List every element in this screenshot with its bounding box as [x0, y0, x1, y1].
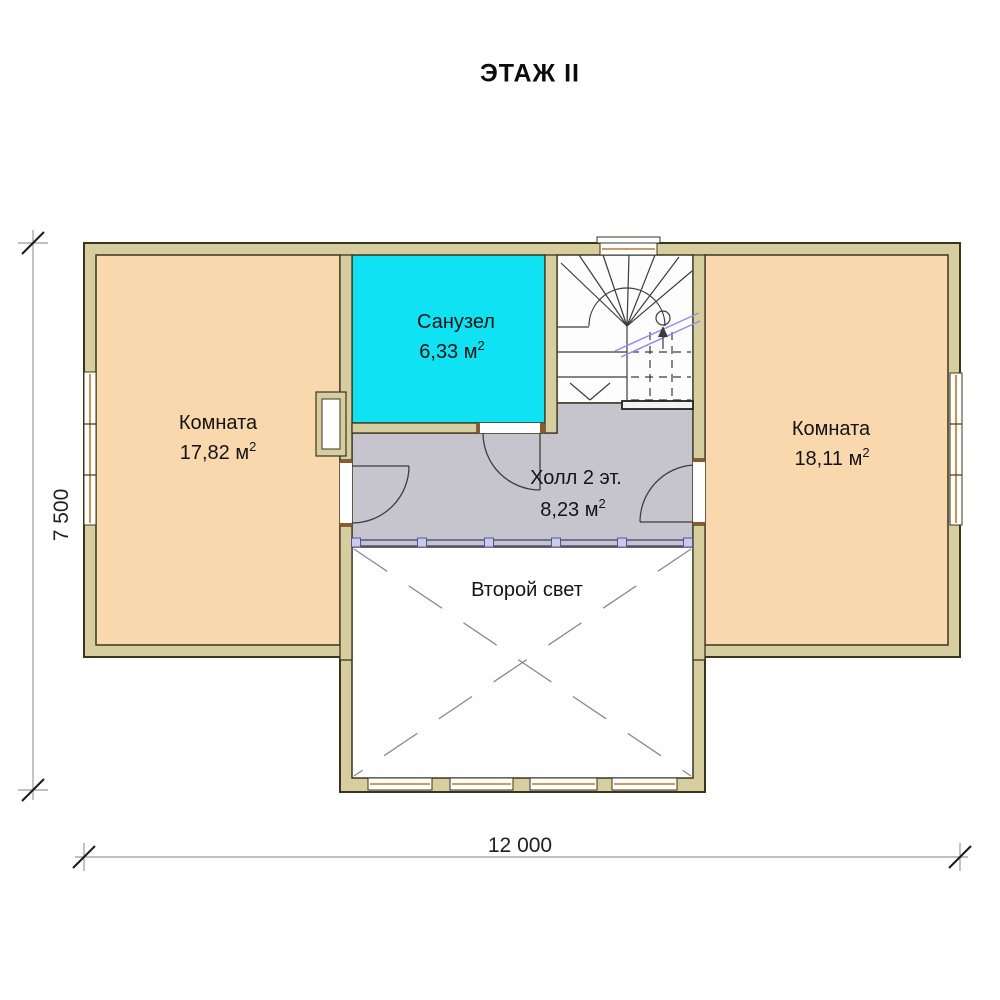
wall-niche — [316, 392, 346, 456]
window-left — [84, 372, 96, 525]
left-room-area-label: 17,82 м2 — [180, 440, 257, 464]
right-room-name-label: Комната — [792, 418, 870, 440]
left-room-name-label: Комната — [179, 412, 257, 434]
floor-plan-page: ЭТАЖ II Комната 17,82 м2 Санузел 6,33 м2… — [0, 0, 1000, 1000]
plan-title: ЭТАЖ II — [480, 60, 580, 89]
dimension-width-label: 12 000 — [488, 834, 552, 858]
stair-entry-rail — [622, 401, 693, 409]
bathroom-name-label: Санузел — [417, 311, 495, 333]
bathroom-area-label: 6,33 м2 — [419, 339, 484, 363]
hall-name-label: Холл 2 эт. — [530, 467, 622, 489]
dimension-depth-label: 7 500 — [50, 489, 74, 542]
right-room-area-label: 18,11 м2 — [794, 446, 869, 470]
window-top — [597, 237, 660, 255]
dimension-line-vertical — [18, 230, 48, 801]
void-name-label: Второй свет — [471, 579, 583, 601]
window-right — [950, 373, 962, 525]
hall-area-label: 8,23 м2 — [540, 497, 605, 521]
